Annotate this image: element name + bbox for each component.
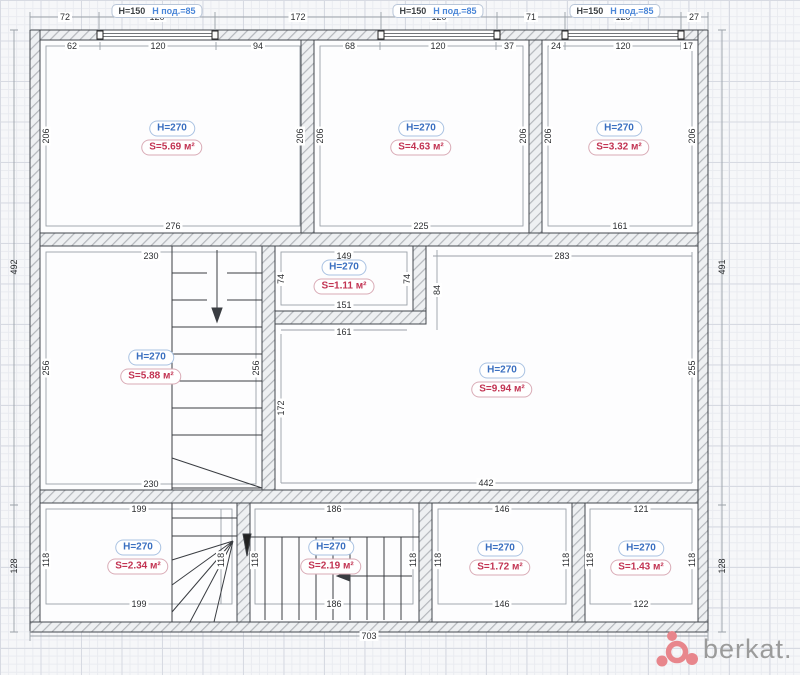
room-height-badge: H=270	[321, 260, 367, 276]
room-height-badge: H=270	[618, 541, 664, 557]
dimension-label: 161	[610, 221, 629, 231]
room-area-badge: S=5.88 м²	[120, 369, 181, 385]
dimension-label: 206	[315, 126, 325, 145]
dimension-label: 206	[295, 126, 305, 145]
room-label: H=270S=5.88 м²	[120, 350, 181, 385]
dimension-label: 225	[411, 221, 430, 231]
dimension-label: 74	[402, 272, 412, 286]
room-label: H=270S=3.32 м²	[588, 121, 649, 156]
wall-left	[30, 30, 40, 632]
room-area-badge: S=2.19 м²	[300, 559, 361, 575]
dimension-label: 118	[250, 551, 260, 569]
dimension-label: 256	[41, 358, 51, 377]
wall-top-divider-2	[529, 40, 542, 233]
room-height-badge: H=270	[115, 540, 161, 556]
wall-right	[698, 30, 708, 632]
dimension-label: 120	[613, 41, 632, 51]
dimension-label: 206	[543, 126, 553, 145]
room-label: H=270S=1.43 м²	[610, 541, 671, 576]
room-label: H=270S=4.63 м²	[390, 121, 451, 156]
room-area-badge: S=4.63 м²	[390, 140, 451, 156]
window-height-text: H=150	[576, 6, 603, 16]
dimension-label: 492	[9, 257, 19, 276]
window-sill-text: H под.=85	[433, 6, 476, 16]
room-height-badge: H=270	[128, 350, 174, 366]
window-height-text: H=150	[118, 6, 145, 16]
wall-horizontal-upper	[40, 233, 698, 246]
dimension-label: 24	[549, 41, 563, 51]
window-icon	[562, 30, 684, 40]
room-label: H=270S=9.94 м²	[471, 363, 532, 398]
windows	[97, 30, 684, 40]
dimension-label: 703	[359, 631, 378, 641]
wall-stair-room	[262, 246, 275, 490]
dimension-label: 84	[432, 283, 442, 297]
dimension-label: 71	[524, 12, 538, 22]
dimension-label: 27	[687, 12, 701, 22]
dimension-label: 161	[334, 327, 353, 337]
dimension-label: 206	[41, 126, 51, 145]
room-height-badge: H=270	[596, 121, 642, 137]
room-area-badge: S=2.34 м²	[107, 559, 168, 575]
wall-bottom-divider-2	[419, 503, 432, 622]
window-spec-label: H=150H под.=85	[111, 4, 202, 18]
dimension-label: 118	[408, 551, 418, 569]
room-label: H=270S=1.11 м²	[314, 260, 375, 295]
dimension-label: 199	[129, 504, 148, 514]
room-area-badge: S=1.72 м²	[469, 560, 530, 576]
window-icon	[97, 30, 218, 40]
dimension-label: 442	[476, 478, 495, 488]
dimension-label: 118	[585, 551, 595, 569]
dimension-label: 118	[216, 551, 226, 569]
room-area-badge: S=1.11 м²	[314, 279, 375, 295]
dimension-label: 17	[681, 41, 695, 51]
window-height-text: H=150	[399, 6, 426, 16]
dimension-label: 491	[717, 257, 727, 276]
wall-bottom-divider-3	[572, 503, 585, 622]
dimension-label: 62	[65, 41, 79, 51]
room-label: H=270S=1.72 м²	[469, 541, 530, 576]
wall-top-segment	[215, 30, 381, 40]
dimension-label: 186	[324, 504, 343, 514]
dimension-label: 118	[561, 551, 571, 569]
dimension-label: 230	[141, 479, 160, 489]
dimension-label: 255	[687, 358, 697, 377]
dimension-label: 146	[492, 504, 511, 514]
window-sill-text: H под.=85	[152, 6, 195, 16]
window-sill-text: H под.=85	[610, 6, 653, 16]
dimension-label: 120	[428, 41, 447, 51]
window-spec-label: H=150H под.=85	[569, 4, 660, 18]
dimension-label: 121	[631, 504, 650, 514]
dimension-label: 283	[552, 251, 571, 261]
dimension-label: 118	[433, 551, 443, 569]
wall-horizontal-lower	[40, 490, 698, 503]
dimension-label: 118	[687, 551, 697, 569]
dimension-label: 172	[276, 398, 286, 417]
dimension-label: 68	[343, 41, 357, 51]
room-height-badge: H=270	[477, 541, 523, 557]
window-spec-label: H=150H под.=85	[392, 4, 483, 18]
dimension-label: 122	[631, 599, 650, 609]
wall-closet-bottom	[275, 311, 426, 324]
wall-bottom-divider-1	[237, 503, 250, 622]
dimension-label: 186	[324, 599, 343, 609]
berkat-logo-text: berkat.	[703, 634, 793, 665]
window-icon	[378, 30, 500, 40]
dimension-label: 37	[502, 41, 516, 51]
dimension-label: 206	[518, 126, 528, 145]
dimension-label: 230	[141, 251, 160, 261]
dimension-label: 72	[58, 12, 72, 22]
room-label: H=270S=2.34 м²	[107, 540, 168, 575]
dimension-label: 128	[717, 556, 727, 575]
dimension-label: 74	[276, 272, 286, 286]
wall-top-segment	[497, 30, 565, 40]
dimension-label: 172	[288, 12, 307, 22]
room-height-badge: H=270	[479, 363, 525, 379]
room-label: H=270S=5.69 м²	[141, 121, 202, 156]
room-area-badge: S=9.94 м²	[471, 382, 532, 398]
dimension-label: 206	[687, 126, 697, 145]
room-height-badge: H=270	[149, 121, 195, 137]
dimension-label: 151	[334, 300, 353, 310]
room-area-badge: S=1.43 м²	[610, 560, 671, 576]
wall-closet-right	[413, 246, 426, 311]
dimension-label: 120	[148, 41, 167, 51]
room-area-badge: S=3.32 м²	[588, 140, 649, 156]
dimension-label: 118	[41, 551, 51, 569]
dimension-label: 94	[251, 41, 265, 51]
room-label: H=270S=2.19 м²	[300, 540, 361, 575]
dimension-label: 146	[492, 599, 511, 609]
dimension-label: 128	[9, 556, 19, 575]
dimension-label: 276	[163, 221, 182, 231]
floorplan-canvas: 7212017212071120276212094681203724120172…	[0, 0, 800, 675]
dimension-label: 256	[251, 358, 261, 377]
room-height-badge: H=270	[398, 121, 444, 137]
room-height-badge: H=270	[308, 540, 354, 556]
dimension-label: 199	[129, 599, 148, 609]
room-area-badge: S=5.69 м²	[141, 140, 202, 156]
